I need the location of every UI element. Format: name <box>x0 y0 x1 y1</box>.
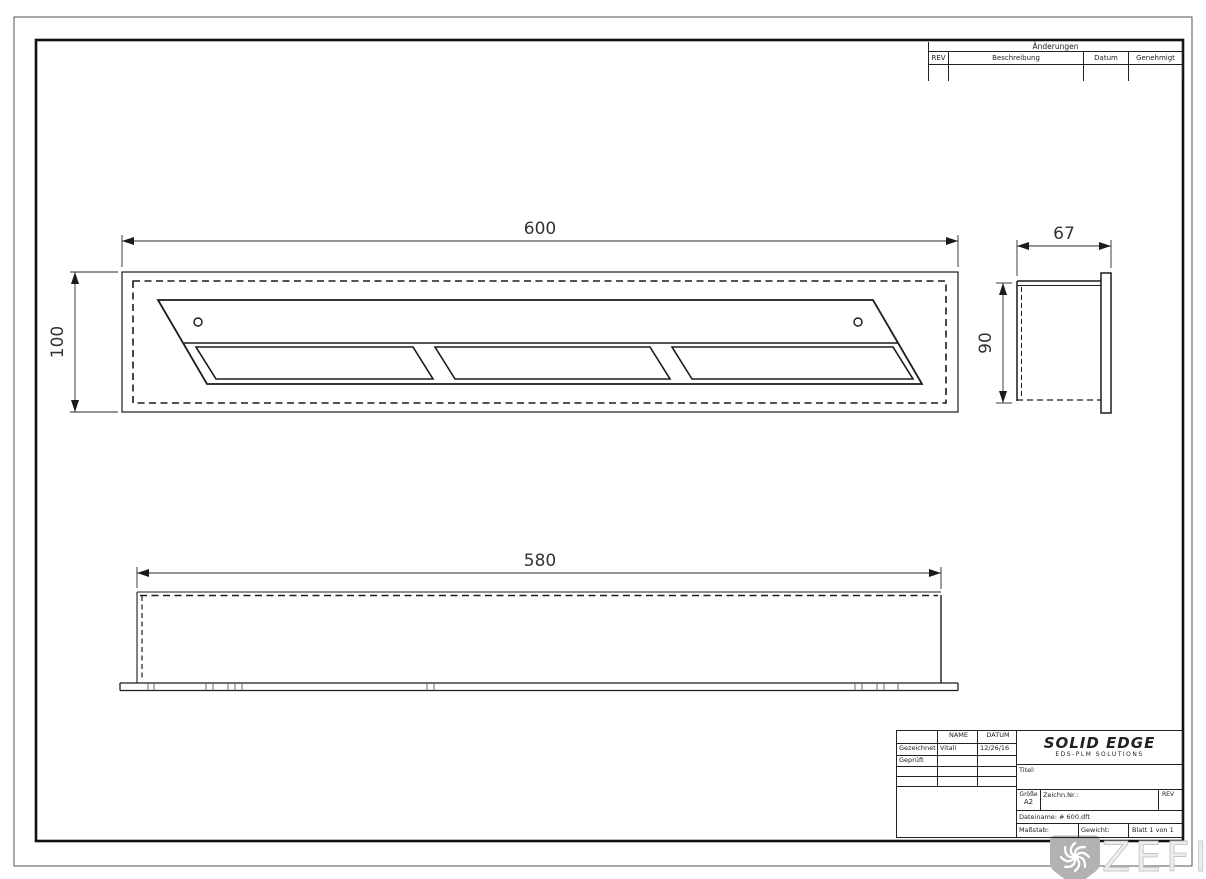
view-side <box>1017 273 1111 413</box>
scale-cell: Maßstab: <box>1017 824 1079 837</box>
drawing-no-cell: Zeichn.Nr.: <box>1041 790 1159 810</box>
revision-table-empty-row <box>928 65 1183 81</box>
size-value: A2 <box>1017 798 1040 806</box>
watermark-badge-icon <box>1050 836 1100 879</box>
revision-table-title: Änderungen <box>928 42 1183 52</box>
revision-table-header: REV Beschreibung Datum Genehmigt <box>928 52 1183 65</box>
title-block-main: SOLID EDGE EDS-PLM SOLUTIONS Titel: Größ… <box>1017 731 1182 837</box>
col-name: NAME <box>938 731 978 743</box>
dim-label-67: 67 <box>1053 224 1075 244</box>
rev-label: REV <box>1162 791 1174 798</box>
dimension-side-height: 90 <box>976 283 1012 403</box>
rev-cell: REV <box>1159 790 1182 810</box>
mount-hole-left <box>194 318 202 326</box>
dim-label-600: 600 <box>524 219 556 239</box>
titel-label: Titel: <box>1019 766 1035 774</box>
dimension-front-width: 580 <box>137 551 941 589</box>
revision-table: Änderungen REV Beschreibung Datum Genehm… <box>928 42 1183 81</box>
rev-col-datum: Datum <box>1084 52 1129 64</box>
scale-weight-sheet-row: Maßstab: Gewicht: Blatt 1 von 1 <box>1017 824 1182 837</box>
gezeichnet-name: Vitali <box>938 744 978 755</box>
logo-subtext: EDS-PLM SOLUTIONS <box>1017 751 1182 759</box>
size-label: Größe <box>1017 791 1040 798</box>
dimension-side-depth: 67 <box>1017 224 1111 276</box>
row-gezeichnet: Gezeichnet Vitali 12/26/16 <box>897 744 1016 756</box>
dimension-top-height: 100 <box>48 272 118 412</box>
row-empty-2 <box>897 777 1016 787</box>
row-geprueft: Geprüft <box>897 756 1016 767</box>
signature-fill-area <box>897 787 1016 837</box>
size-drawingno-rev-row: Größe A2 Zeichn.Nr.: REV <box>1017 790 1182 811</box>
drawing-sheet: 600 100 67 90 <box>0 0 1206 879</box>
rev-col-beschreibung: Beschreibung <box>949 52 1084 64</box>
size-cell: Größe A2 <box>1017 790 1041 810</box>
filename-cell: Dateiname: # 600.dft <box>1017 811 1182 824</box>
gezeichnet-date: 12/26/16 <box>978 744 1016 755</box>
sheet-cell: Blatt 1 von 1 <box>1129 824 1182 837</box>
geprueft-label: Geprüft <box>897 756 938 766</box>
weight-cell: Gewicht: <box>1079 824 1129 837</box>
dim-label-90: 90 <box>976 332 996 354</box>
dimension-top-width: 600 <box>122 219 958 267</box>
view-top <box>122 272 958 412</box>
title-block-signatures: NAME DATUM Gezeichnet Vitali 12/26/16 Ge… <box>897 731 1017 837</box>
gezeichnet-label: Gezeichnet <box>897 744 938 755</box>
view-front <box>120 592 958 691</box>
solid-edge-logo: SOLID EDGE EDS-PLM SOLUTIONS <box>1017 731 1182 765</box>
watermark: ZEFIRE <box>1050 833 1206 879</box>
geprueft-name <box>938 756 978 766</box>
mount-hole-right <box>854 318 862 326</box>
dim-label-580: 580 <box>524 551 556 571</box>
rev-col-rev: REV <box>929 52 949 64</box>
logo-text: SOLID EDGE <box>1017 735 1182 751</box>
geprueft-date <box>978 756 1016 766</box>
filename-label: Dateiname: # 600.dft <box>1019 813 1090 821</box>
rev-col-genehmigt: Genehmigt <box>1129 52 1182 64</box>
title-block: NAME DATUM Gezeichnet Vitali 12/26/16 Ge… <box>896 730 1183 838</box>
flange-hidden-ticks <box>148 683 898 691</box>
signature-header-row: NAME DATUM <box>897 731 1016 744</box>
drawing-no-label: Zeichn.Nr.: <box>1043 791 1078 799</box>
row-empty-1 <box>897 767 1016 777</box>
col-datum: DATUM <box>978 731 1016 743</box>
watermark-text: ZEFIRE <box>1102 833 1206 879</box>
dim-label-100: 100 <box>48 326 68 358</box>
titel-cell: Titel: <box>1017 765 1182 790</box>
